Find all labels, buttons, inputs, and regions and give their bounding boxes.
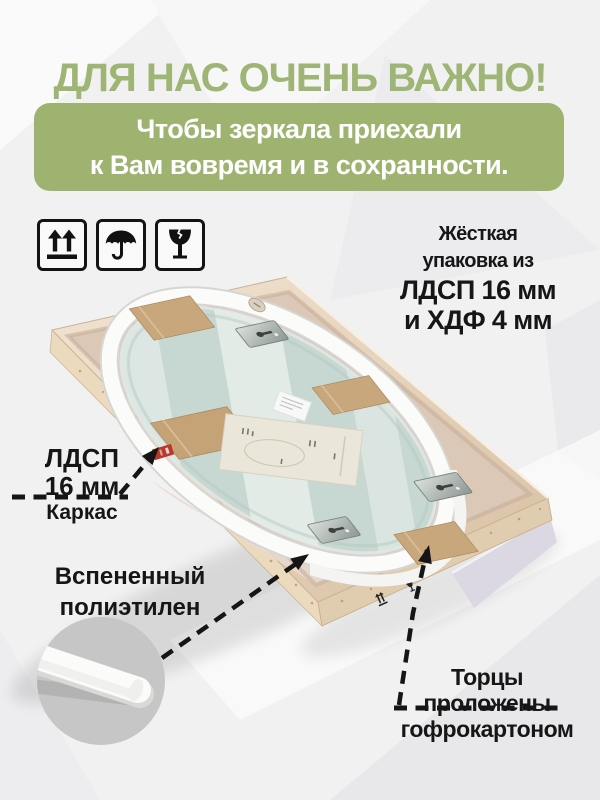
edges-callout-line-2: проложены xyxy=(398,690,576,716)
specs-line-1: Жёсткая xyxy=(372,221,584,248)
specs-line-4: и ХДФ 4 мм xyxy=(372,305,584,335)
promise-banner: Чтобы зеркала приехали к Вам вовремя и в… xyxy=(34,103,564,191)
foam-callout-line-1: Вспененный xyxy=(22,561,238,592)
edges-callout-line-3: гофрокартоном xyxy=(398,716,576,742)
foam-callout: Вспененный полиэтилен xyxy=(22,561,238,623)
edges-callout-line-1: Торцы xyxy=(398,664,576,690)
banner-line-2: к Вам вовремя и в сохранности. xyxy=(34,147,564,183)
specs-line-3: ЛДСП 16 мм xyxy=(372,275,584,305)
packaging-specs: Жёсткая упаковка из ЛДСП 16 мм и ХДФ 4 м… xyxy=(372,221,584,335)
frame-callout-material: ЛДСП xyxy=(18,443,146,474)
frame-callout-thickness: 16 мм xyxy=(18,471,146,502)
edges-callout: Торцы проложены гофрокартоном xyxy=(398,664,576,742)
infographic-page: ДЛЯ НАС ОЧЕНЬ ВАЖНО! Чтобы зеркала приех… xyxy=(0,0,600,800)
specs-line-2: упаковка из xyxy=(372,248,584,275)
this-way-up-icon xyxy=(37,219,87,271)
keep-dry-icon xyxy=(96,219,146,271)
page-title: ДЛЯ НАС ОЧЕНЬ ВАЖНО! xyxy=(0,56,600,101)
banner-line-1: Чтобы зеркала приехали xyxy=(34,111,564,147)
frame-callout-name: Каркас xyxy=(18,501,146,525)
fragile-icon xyxy=(155,219,205,271)
handling-icons-row xyxy=(37,219,205,271)
foam-callout-line-2: полиэтилен xyxy=(22,592,238,623)
